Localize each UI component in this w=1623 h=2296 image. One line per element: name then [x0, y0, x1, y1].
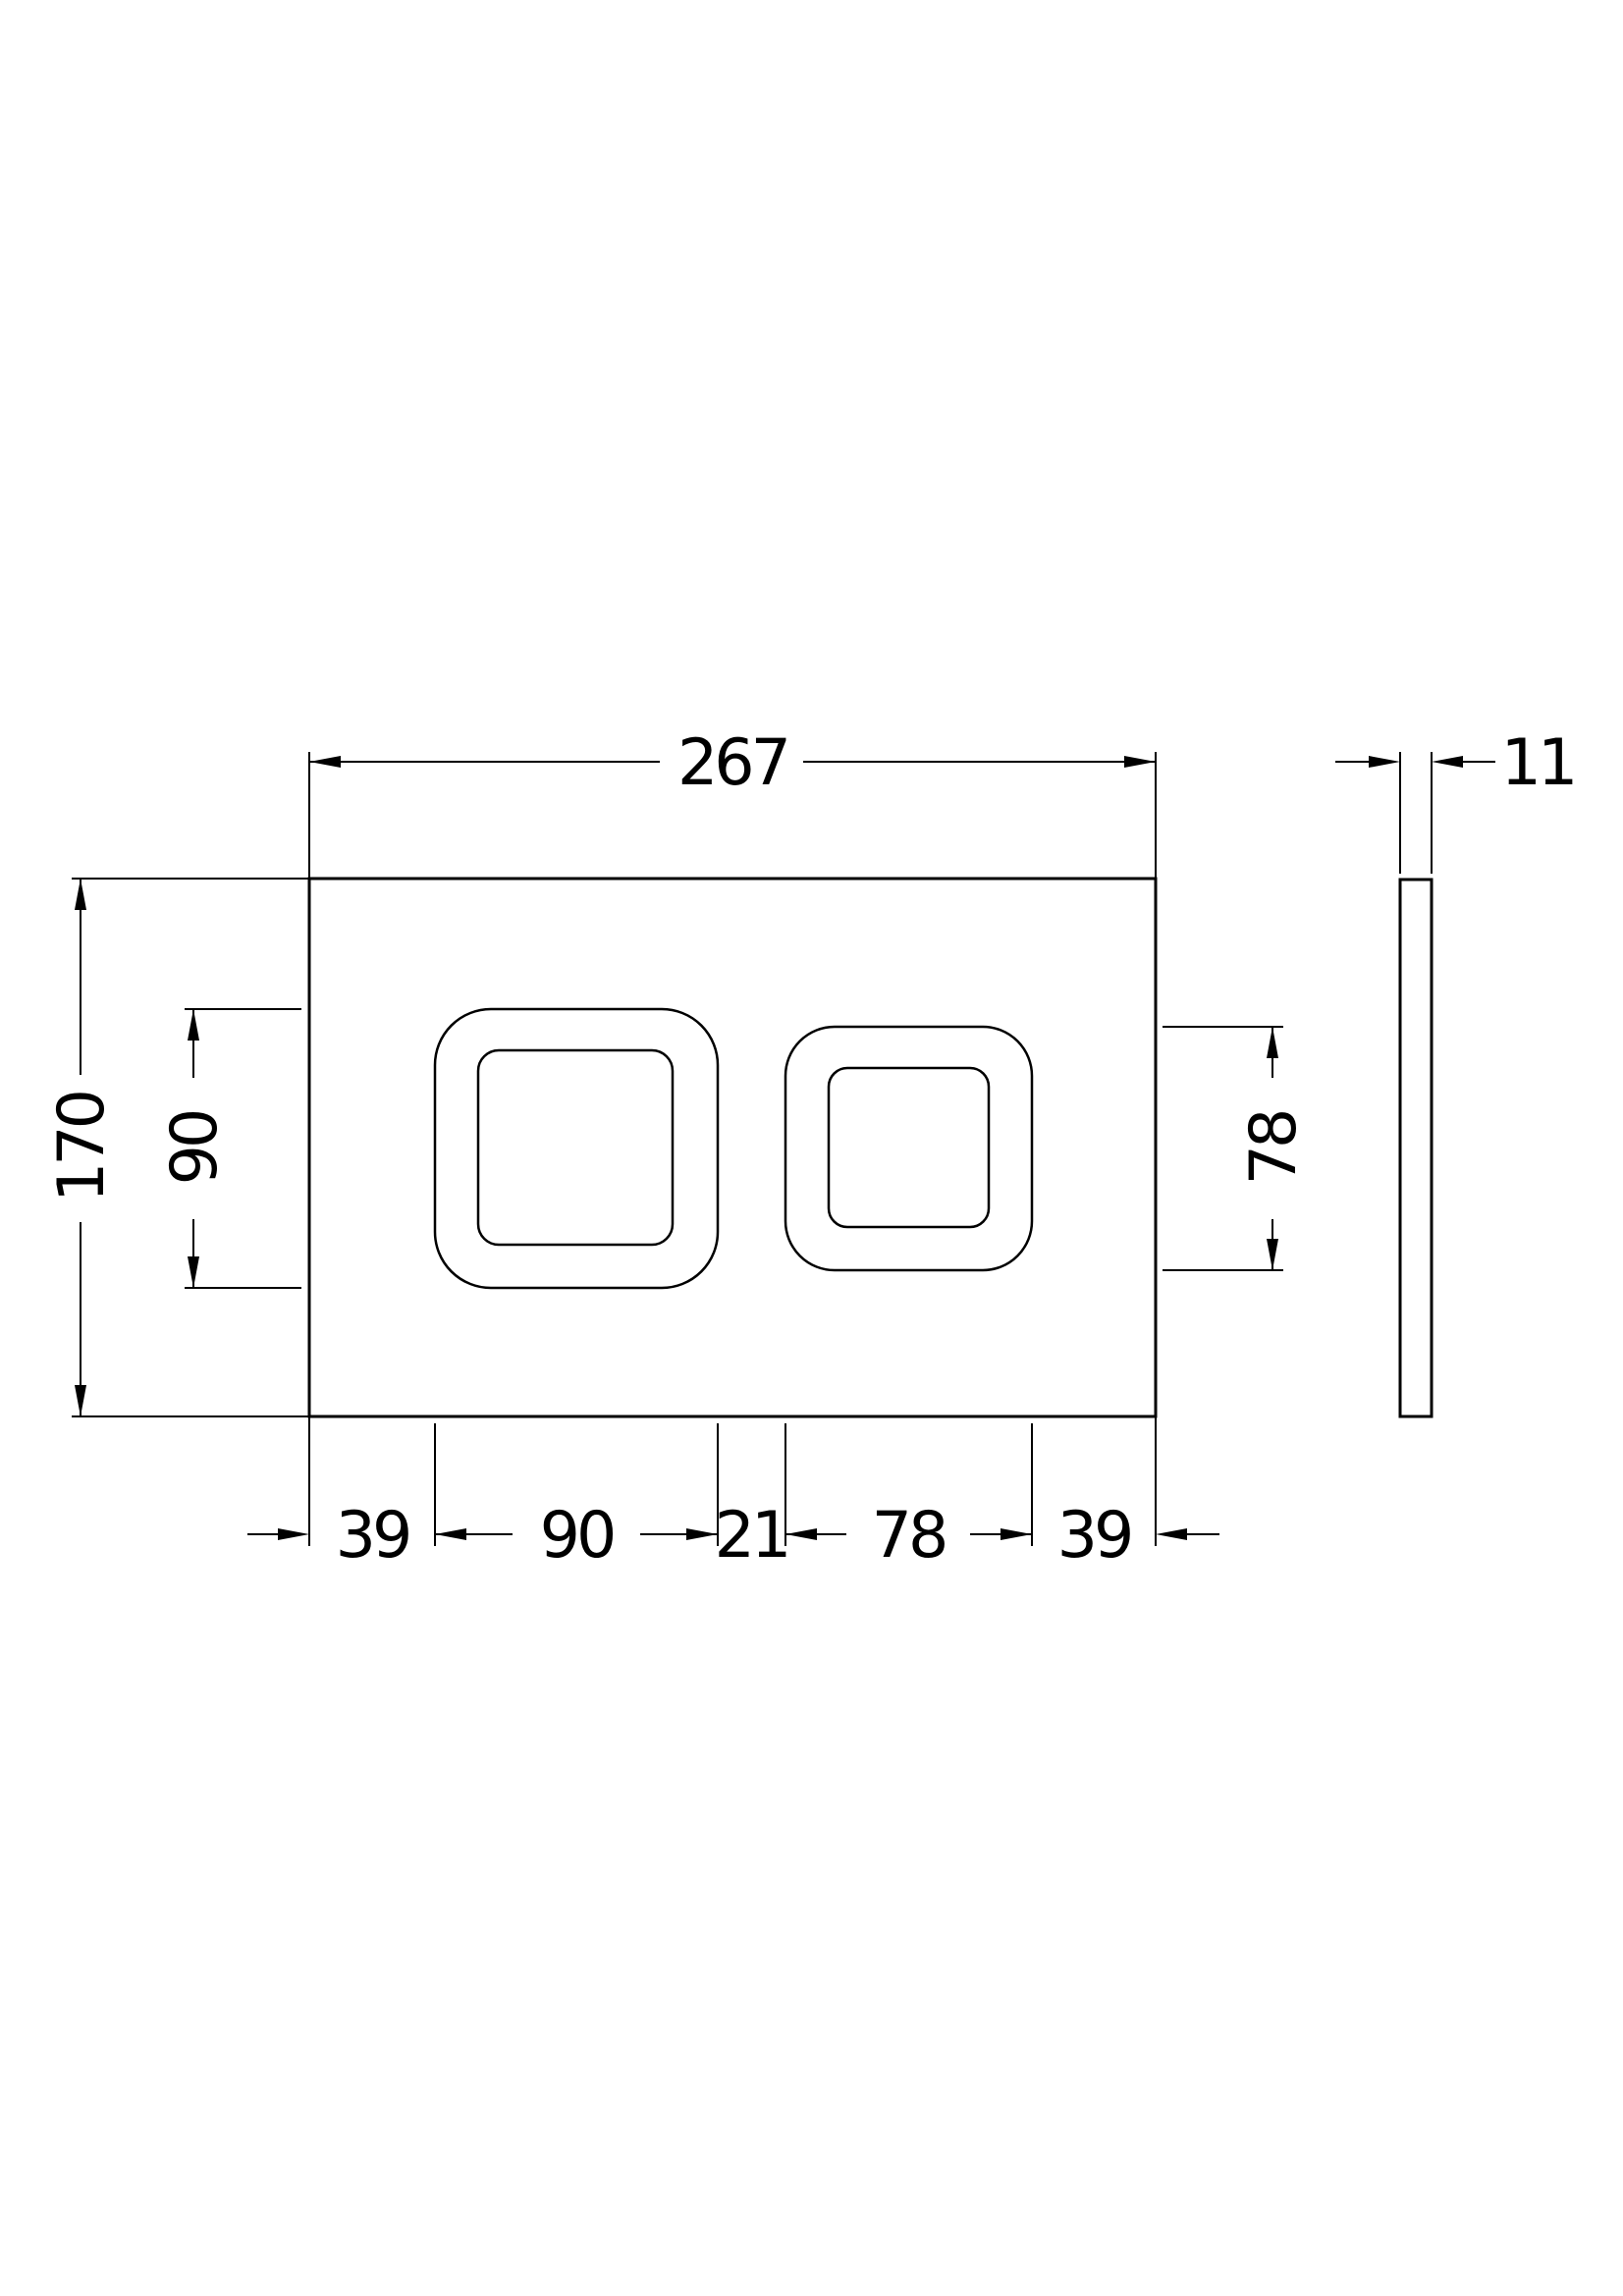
dim-label-right-button-width: 78 — [872, 1499, 946, 1573]
arrowhead — [75, 1385, 86, 1416]
dim-thickness: 11 — [1335, 726, 1574, 874]
side-view — [1400, 880, 1432, 1416]
arrowhead — [1369, 756, 1400, 768]
dim-left-button-height: 90 — [158, 1009, 301, 1288]
front-view — [309, 879, 1156, 1416]
dim-bottom-chain: 39 90 21 78 39 — [247, 1416, 1219, 1573]
dim-right-button-height: 78 — [1163, 1027, 1311, 1270]
dim-label-thickness: 11 — [1501, 726, 1575, 800]
arrowhead — [1001, 1528, 1032, 1540]
dim-label-right-button-height: 78 — [1237, 1112, 1311, 1186]
arrowhead — [686, 1528, 718, 1540]
dim-label-left-button-width: 90 — [540, 1499, 614, 1573]
arrowhead — [1156, 1528, 1187, 1540]
arrowhead — [278, 1528, 309, 1540]
arrowhead — [1124, 756, 1156, 768]
side-profile-outline — [1400, 880, 1432, 1416]
arrowhead — [1432, 756, 1463, 768]
dim-label-left-button-height: 90 — [158, 1111, 232, 1185]
dim-label-button-gap: 21 — [715, 1499, 788, 1573]
left-button-inner-outline — [478, 1050, 673, 1245]
dim-overall-width: 267 — [309, 726, 1156, 881]
arrowhead — [309, 756, 341, 768]
dim-label-edge-to-button-right: 39 — [1057, 1499, 1131, 1573]
drawing-canvas: 267 11 170 90 78 — [0, 0, 1623, 2296]
right-button-outer-outline — [785, 1027, 1032, 1270]
dim-label-overall-height: 170 — [45, 1092, 119, 1202]
arrowhead — [1267, 1239, 1278, 1270]
arrowhead — [188, 1009, 199, 1041]
dim-label-overall-width: 267 — [677, 726, 787, 800]
right-button-inner-outline — [829, 1068, 989, 1227]
arrowhead — [75, 879, 86, 910]
dim-label-edge-to-button-left: 39 — [336, 1499, 409, 1573]
arrowhead — [1267, 1027, 1278, 1058]
arrowhead — [188, 1256, 199, 1288]
flush-plate-technical-drawing: 267 11 170 90 78 — [0, 0, 1623, 2296]
plate-outline — [309, 879, 1156, 1416]
